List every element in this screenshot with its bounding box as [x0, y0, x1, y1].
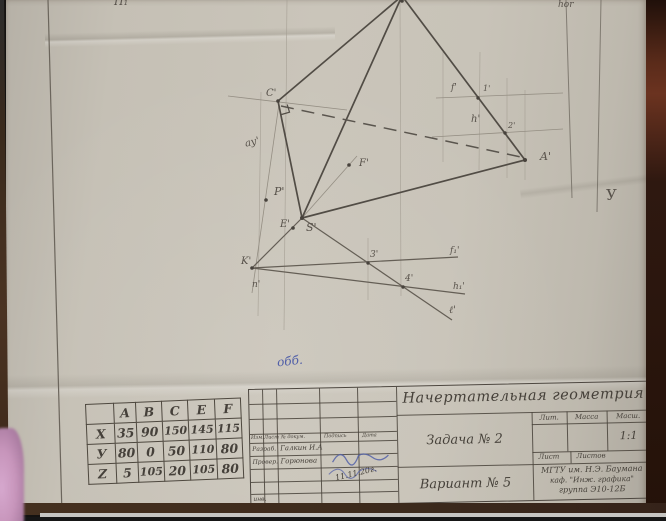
stamp-col-list: Лист: [264, 435, 279, 440]
coordinates-table: A B C E F X 35 90 150 145 115 У 80 0 50 …: [85, 397, 244, 484]
row-label-X: X: [86, 423, 115, 444]
cell-YE: 110: [189, 439, 217, 460]
stamp-col-data: Дата: [362, 433, 377, 438]
stamp-mass-label: Масса: [567, 413, 607, 421]
stamp-org-line3: группа Э10-12Б: [535, 485, 649, 495]
stamp-scale-label: Масш.: [607, 413, 650, 421]
stamp-prover-label: Провер.: [252, 459, 278, 466]
stamp-task: Задача № 2: [397, 432, 532, 448]
stamp-grid-line: [276, 389, 279, 505]
cell-ZA: 5: [116, 462, 139, 483]
cell-ZB: 105: [138, 461, 165, 482]
cell-XF: 115: [215, 418, 242, 439]
cell-ZC: 20: [164, 460, 191, 481]
row-label-Y: У: [87, 443, 116, 464]
cell-XE: 145: [188, 419, 216, 440]
cell-XA: 35: [114, 422, 137, 443]
stamp-org-line2: каф. "Инж. графика": [535, 475, 649, 485]
col-header-A: A: [113, 402, 136, 423]
stamp-grid-line: [251, 491, 398, 495]
col-header-F: F: [214, 398, 241, 419]
col-header-E: E: [187, 399, 215, 420]
stamp-sheet-label: Лист: [538, 453, 559, 460]
stamp-grid-line: [250, 416, 397, 420]
cell-XB: 90: [136, 421, 163, 442]
stamp-col-dokum: № докум.: [281, 435, 305, 441]
photo-of-drawing-sheet: П₁ hor У C' A' S' E' F' P' K' n' ау' f' …: [0, 0, 666, 521]
stamp-prover-name: Горюнова: [280, 458, 317, 466]
floor-light-strip: [40, 513, 666, 518]
cell-YC: 50: [163, 440, 190, 461]
stamp-corner-note: инв.: [253, 497, 266, 503]
stamp-razrab-label: Разраб.: [252, 446, 276, 452]
col-header-B: B: [135, 401, 162, 422]
stamp-sheets-label: Листов: [576, 453, 605, 461]
cell-YA: 80: [115, 442, 138, 463]
floor-dark-strip: [0, 517, 666, 521]
corner-cell: [86, 403, 115, 424]
col-header-C: C: [161, 400, 188, 421]
stamp-lit-label: Лит.: [532, 414, 567, 422]
stamp-col-podpis: Подпись: [324, 434, 347, 439]
cell-ZF: 80: [217, 458, 244, 479]
cell-ZE: 105: [190, 459, 218, 480]
stamp-col-izm: Изм.: [251, 436, 264, 441]
stamp-grid-line: [570, 451, 571, 463]
stamp-title: Начертательная геометрия: [399, 387, 647, 407]
stamp-scale-value: 1:1: [607, 430, 650, 442]
title-block: Начертательная геометрия Задача № 2 Вари…: [248, 381, 652, 507]
stamp-grid-line: [249, 401, 396, 405]
cell-XC: 150: [162, 420, 189, 441]
stamp-razrab-name: Галкин И.А: [280, 444, 323, 452]
cell-YB: 0: [137, 441, 164, 462]
stamp-grid-line: [532, 422, 650, 425]
stamp-variant: Вариант № 5: [398, 476, 533, 492]
cell-YF: 80: [216, 438, 243, 459]
row-label-Z: Z: [88, 463, 117, 484]
